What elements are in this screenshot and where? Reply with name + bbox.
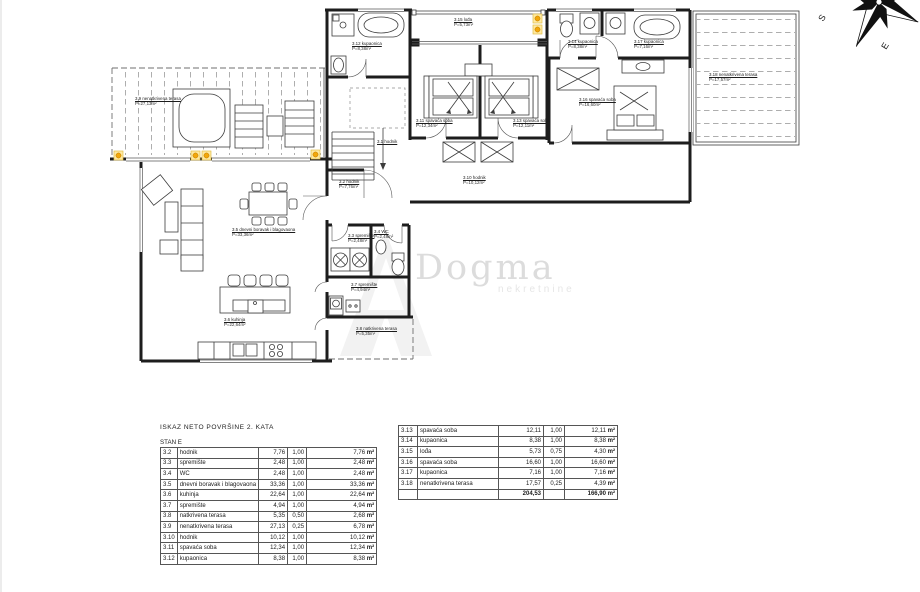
room-label: 3.15 lođaP=5,73m² — [454, 17, 473, 27]
room-label: 3.16 spavaća sobaP=16,60m² — [579, 97, 616, 107]
floorplan-page: { "compass": { "s": "S", "e": "E" }, "wa… — [0, 0, 920, 592]
table-row: 3.3spremište2,481,002,48 m² — [161, 458, 377, 469]
room-label: 3.1 hodnik — [377, 139, 397, 144]
table-title: ISKAZ NETO POVRŠINE 2. KATA — [160, 424, 377, 431]
net-area-table-right: 3.13spavaća soba12,111,0012,11 m²3.14kup… — [398, 425, 618, 500]
room-label: 3.17 kupaonicaP=7,16m² — [634, 39, 664, 49]
room-label: 3.9 nenatkrivena terasaP=27,13m² — [135, 96, 181, 106]
table-row: 3.6kuhinja22,641,0022,64 m² — [161, 490, 377, 501]
table-subtitle: STAN E — [160, 439, 377, 446]
room-label: 3.7 spremišteP=4,94m² — [351, 282, 377, 292]
room-label: 3.5 dnevni boravak i blagovaonaP=33,36m² — [232, 227, 295, 237]
table-row: 3.17kupaonica7,161,007,16 m² — [399, 468, 618, 479]
area-table-left: ISKAZ NETO POVRŠINE 2. KATA STAN E 3.2ho… — [160, 424, 377, 565]
table-row: 3.5dnevni boravak i blagovaona33,361,003… — [161, 479, 377, 490]
table-row: 3.8natkrivena terasa5,350,502,68 m² — [161, 511, 377, 522]
table-row: 3.10hodnik10,121,0010,12 m² — [161, 532, 377, 543]
net-area-table-left: 3.2hodnik7,761,007,76 m²3.3spremište2,48… — [160, 447, 377, 565]
table-row: 3.16spavaća soba16,601,0016,60 m² — [399, 457, 618, 468]
room-label: 3.6 kuhinjaP=22,64m² — [224, 317, 246, 327]
room-label: 3.4 WCP=2,48m² — [374, 229, 393, 239]
room-label: 3.8 natkrivena terasaP=5,35m² — [356, 326, 397, 336]
table-row: 3.12kupaonica8,381,008,38 m² — [161, 553, 377, 564]
area-table-right: 3.13spavaća soba12,111,0012,11 m²3.14kup… — [398, 425, 618, 500]
room-label: 3.12 kupaonicaP=8,38m² — [352, 41, 382, 51]
table-row: 3.2hodnik7,761,007,76 m² — [161, 448, 377, 459]
room-label: 3.13 spavaća sobaP=12,11m² — [513, 118, 550, 128]
table-row: 3.13spavaća soba12,111,0012,11 m² — [399, 426, 618, 437]
table-row: 3.4WC2,481,002,48 m² — [161, 469, 377, 480]
table-total-row: 204,53166,90 m² — [399, 489, 618, 500]
room-label: 3.3 spremišteP=2,48m² — [348, 233, 374, 243]
table-row: 3.9nenatkrivena terasa27,130,256,78 m² — [161, 522, 377, 533]
room-label: 3.10 hodnikP=10,12m² — [463, 175, 486, 185]
room-label: 3.18 nenatkrivena terasaP=17,57m² — [709, 72, 757, 82]
table-row: 3.7spremište4,941,004,94 m² — [161, 500, 377, 511]
room-label: 3.14 kupaonicaP=8,38m² — [568, 39, 598, 49]
room-label: 3.11 spavaća sobaP=12,34m² — [416, 118, 453, 128]
table-row: 3.11spavaća soba12,341,0012,34 m² — [161, 543, 377, 554]
table-row: 3.14kupaonica8,381,008,38 m² — [399, 436, 618, 447]
table-row: 3.15lođa5,730,754,30 m² — [399, 447, 618, 458]
table-row: 3.18nenatkrivena terasa17,570,254,39 m² — [399, 478, 618, 489]
room-label: 3.2 hodnikP=7,76m² — [339, 179, 359, 189]
plan-labels-layer: 3.9 nenatkrivena terasaP=27,13m²3.5 dnev… — [2, 0, 920, 592]
